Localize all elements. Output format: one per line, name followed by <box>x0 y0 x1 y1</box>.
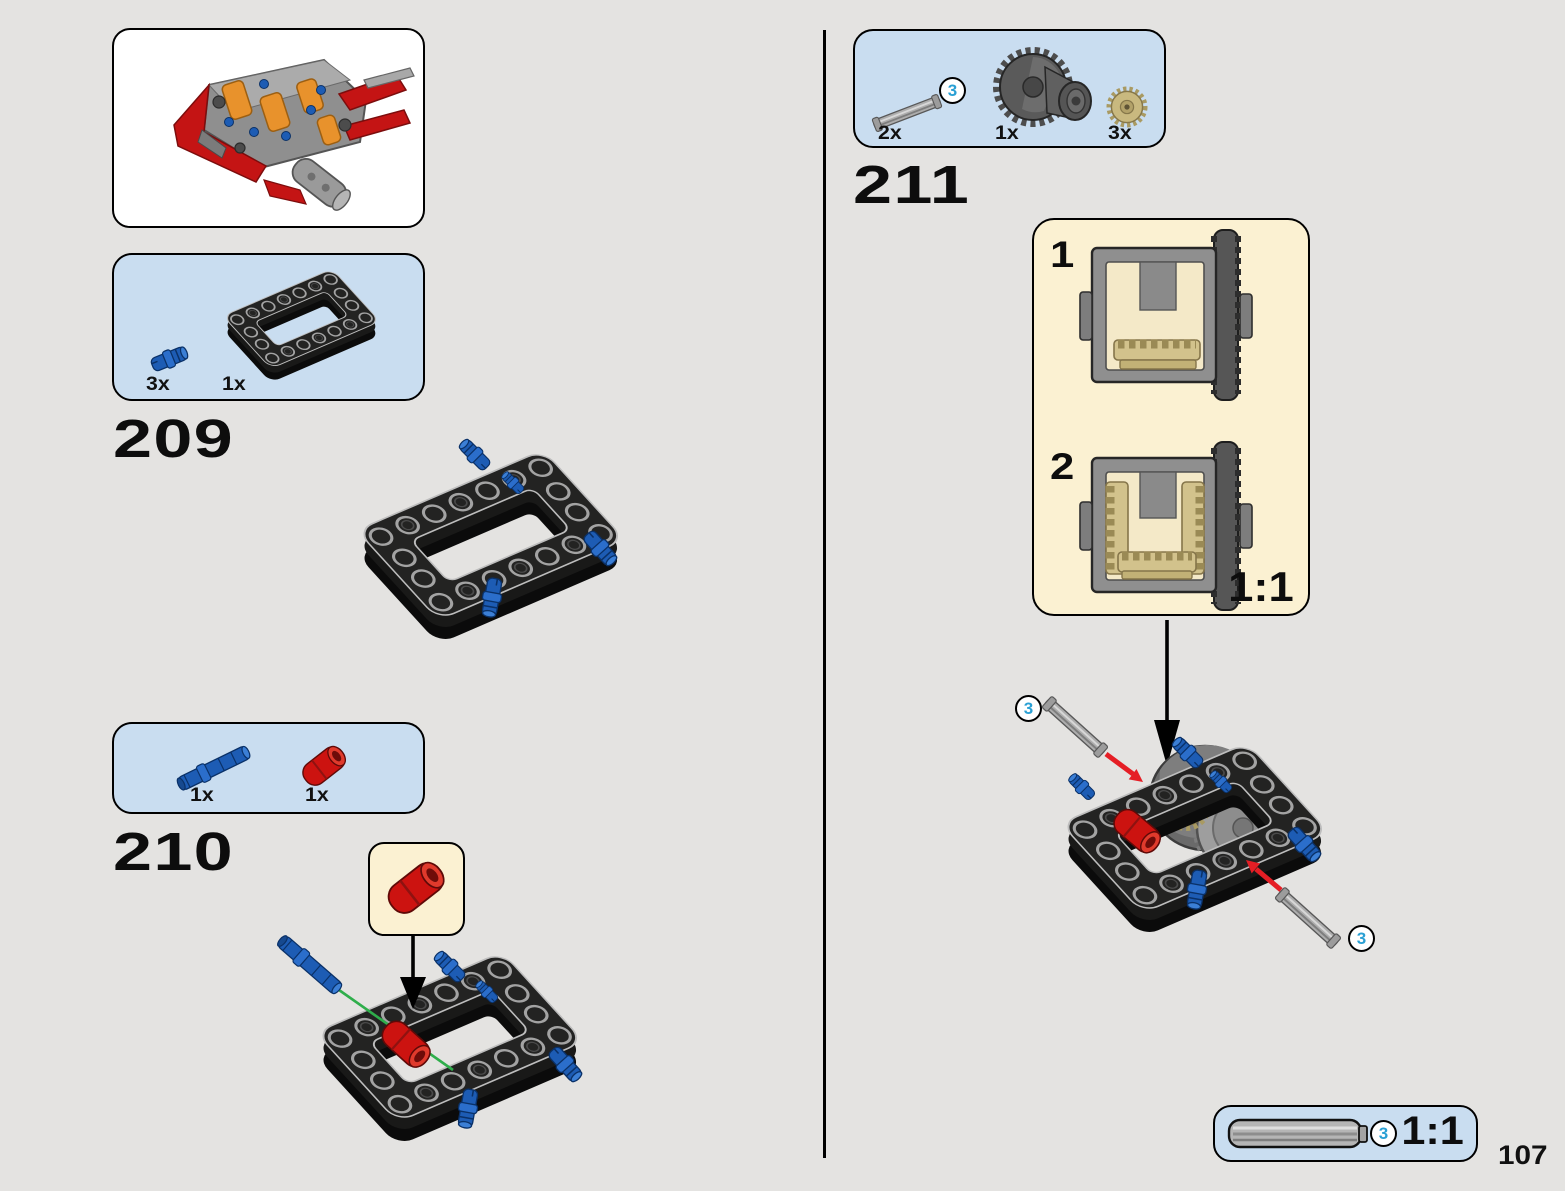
axle-1to1-icon <box>1227 1117 1379 1151</box>
axle-length-badge: 3 <box>939 77 966 104</box>
insert-arrow-red <box>1106 754 1143 782</box>
step-number-210: 210 <box>113 825 234 879</box>
parts-box-211: 2x 1x 3x <box>853 29 1166 148</box>
blue-pin <box>456 436 493 473</box>
front-cylinder <box>288 154 354 214</box>
step-number-211: 211 <box>853 158 970 212</box>
step-210-diagram <box>265 915 645 1191</box>
part-quantity: 3x <box>146 375 170 394</box>
scale-label: 1:1 <box>1228 566 1294 608</box>
part-quantity: 2x <box>878 124 902 143</box>
axle-length-value: 3 <box>1357 929 1366 949</box>
page-number: 107 <box>1498 1140 1548 1171</box>
bevel-gear-bottom <box>1118 552 1196 579</box>
ring-gear-side <box>1214 230 1252 400</box>
partial-model-illustration <box>174 60 414 214</box>
column-divider <box>823 30 826 1158</box>
step-209-diagram <box>335 425 645 660</box>
model-preview-image <box>114 30 422 225</box>
parts-box-210: 1x 1x <box>112 722 425 814</box>
axle-length-value: 3 <box>1379 1124 1388 1144</box>
parts-box-209: 3x 1x <box>112 253 425 401</box>
part-quantity: 1x <box>305 786 329 805</box>
part-quantity: 3x <box>1108 124 1132 143</box>
part-quantity: 1x <box>190 786 214 805</box>
axle-length-badge: 3 <box>1370 1120 1397 1147</box>
axle-length-value: 3 <box>1024 699 1033 719</box>
axle-length-badge: 3 <box>1348 925 1375 952</box>
step-number-209: 209 <box>113 412 234 466</box>
part-quantity: 1x <box>222 375 246 394</box>
axle-length-badge: 3 <box>1015 695 1042 722</box>
axle-3l <box>1275 887 1342 949</box>
substep-1-diagram <box>1062 228 1272 418</box>
technic-frame <box>316 952 584 1146</box>
blue-long-pin <box>274 932 345 997</box>
model-preview-box <box>112 28 425 228</box>
instruction-page: 3x 1x 209 1x 1x 210 <box>0 0 1565 1191</box>
blue-pin <box>1066 771 1097 802</box>
scale-label: 1:1 <box>1402 1111 1464 1151</box>
substep-callout-211: 1 2 <box>1032 218 1310 616</box>
axle-3l <box>1042 696 1109 758</box>
step-211-diagram <box>1000 678 1400 978</box>
bevel-gear-bottom <box>1114 340 1200 369</box>
axle-gauge-callout: 1:1 <box>1213 1105 1478 1162</box>
axle-length-value: 3 <box>948 81 957 101</box>
part-quantity: 1x <box>995 124 1019 143</box>
blue-long-pin-icon <box>152 732 277 804</box>
